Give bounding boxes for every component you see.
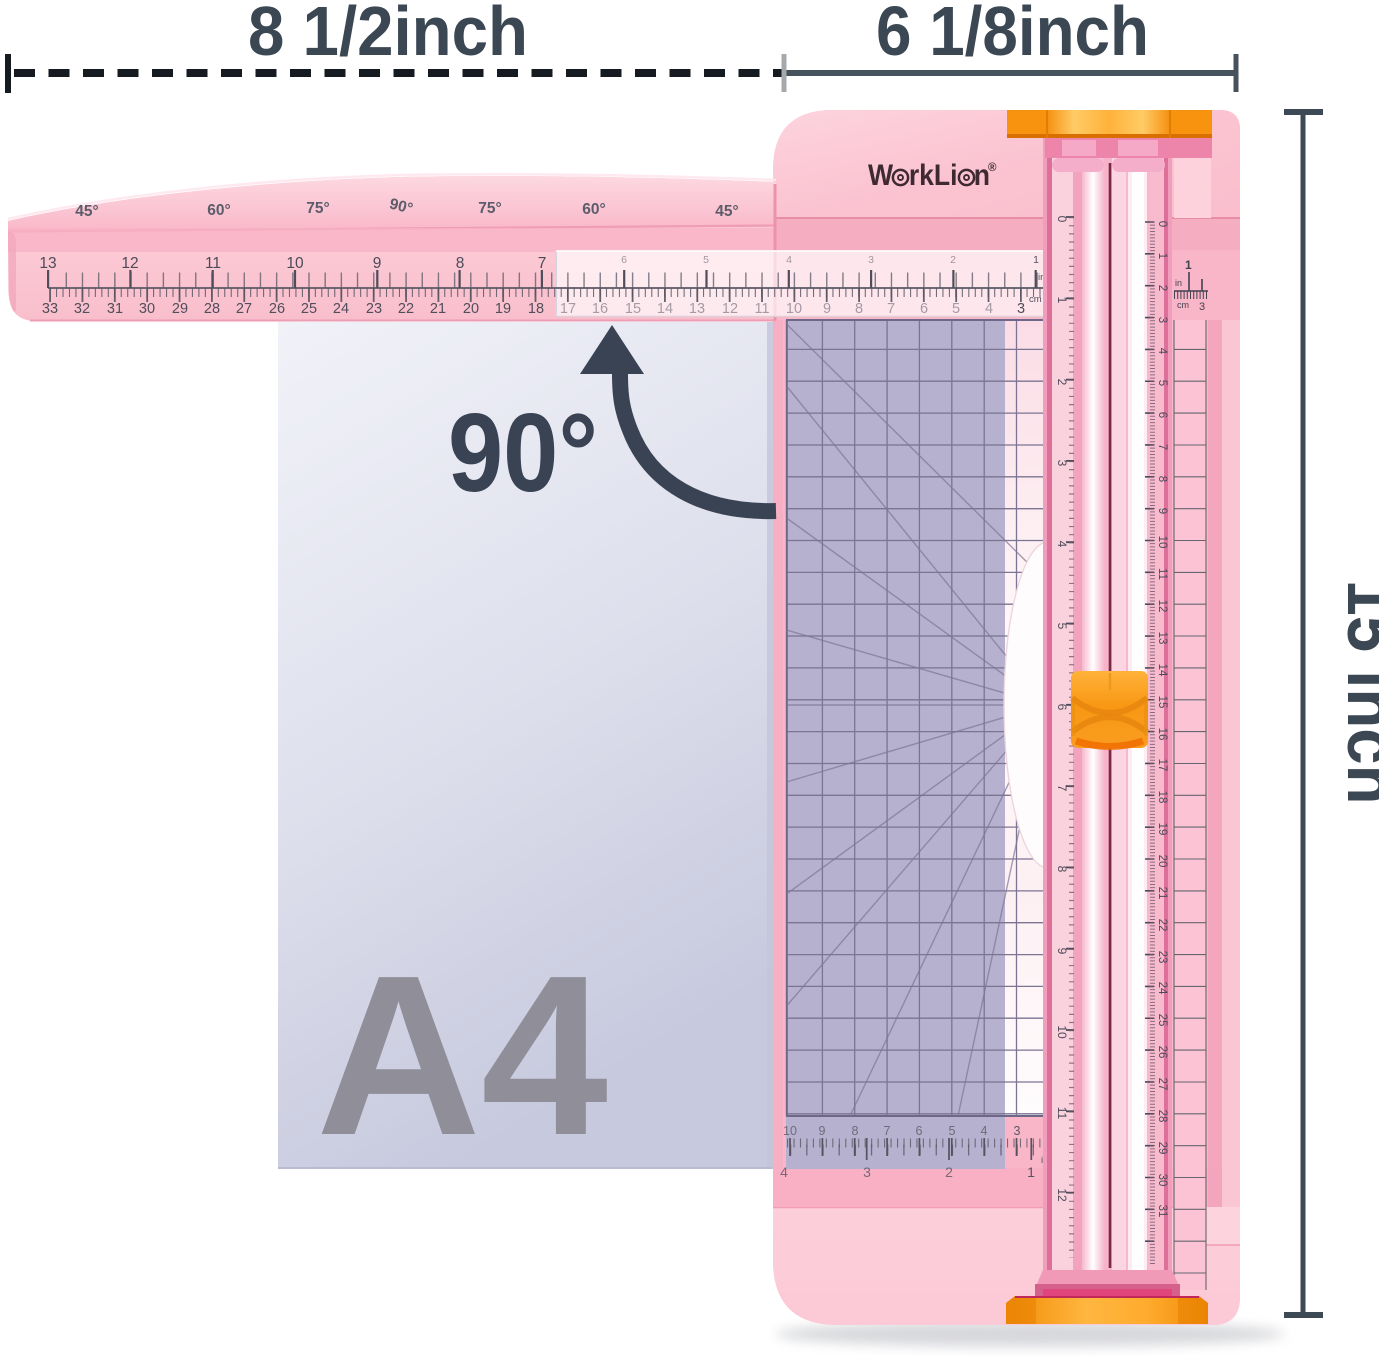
svg-text:60°: 60° [207, 202, 230, 219]
svg-text:3: 3 [1017, 301, 1025, 317]
svg-text:®: ® [988, 162, 997, 174]
svg-text:45°: 45° [75, 203, 98, 220]
svg-text:8: 8 [1156, 476, 1168, 482]
svg-text:21: 21 [1156, 887, 1168, 900]
svg-text:30: 30 [1156, 1174, 1168, 1187]
svg-text:60°: 60° [582, 201, 605, 218]
svg-text:75°: 75° [478, 200, 501, 217]
svg-text:cm: cm [1177, 300, 1189, 310]
svg-text:3: 3 [1199, 301, 1205, 313]
svg-text:5: 5 [952, 301, 960, 317]
svg-text:45°: 45° [715, 203, 738, 220]
svg-text:4: 4 [981, 1124, 988, 1138]
svg-text:75°: 75° [306, 200, 329, 217]
svg-text:31: 31 [107, 301, 123, 317]
svg-text:20: 20 [1156, 855, 1168, 868]
svg-text:24: 24 [333, 301, 349, 317]
svg-text:90°: 90° [448, 391, 598, 515]
svg-text:9: 9 [1156, 508, 1168, 514]
svg-text:8 1/2inch: 8 1/2inch [248, 0, 528, 70]
svg-text:4: 4 [1156, 348, 1168, 355]
svg-text:20: 20 [463, 301, 479, 317]
svg-text:11: 11 [1055, 1107, 1069, 1120]
svg-text:25: 25 [301, 301, 317, 317]
svg-text:15: 15 [625, 301, 641, 317]
svg-text:3: 3 [1014, 1124, 1021, 1138]
svg-text:16: 16 [1156, 728, 1168, 741]
svg-text:1: 1 [1156, 253, 1168, 259]
svg-text:2: 2 [945, 1164, 953, 1180]
svg-text:33: 33 [42, 301, 58, 317]
svg-text:23: 23 [1156, 951, 1168, 964]
svg-text:28: 28 [1156, 1110, 1168, 1123]
svg-text:4: 4 [780, 1164, 788, 1180]
svg-text:30: 30 [139, 301, 155, 317]
svg-text:28: 28 [204, 301, 220, 317]
svg-text:27: 27 [236, 301, 252, 317]
svg-text:9: 9 [823, 301, 831, 317]
svg-text:7: 7 [887, 301, 895, 317]
svg-text:15 inch: 15 inch [1333, 580, 1379, 805]
svg-text:24: 24 [1156, 982, 1168, 995]
svg-text:5: 5 [1156, 380, 1168, 386]
svg-text:9: 9 [819, 1124, 826, 1138]
svg-text:in: in [1175, 278, 1182, 288]
svg-text:6: 6 [1156, 412, 1168, 418]
svg-text:11: 11 [754, 301, 769, 317]
svg-text:22: 22 [398, 301, 414, 317]
svg-text:9: 9 [373, 255, 382, 272]
svg-text:10: 10 [286, 255, 304, 272]
svg-text:14: 14 [657, 301, 673, 317]
svg-text:25: 25 [1156, 1014, 1168, 1027]
svg-text:1: 1 [1033, 254, 1039, 266]
svg-text:cm: cm [1029, 294, 1042, 305]
svg-text:18: 18 [1156, 791, 1168, 804]
svg-text:29: 29 [1156, 1142, 1168, 1155]
svg-text:12: 12 [121, 255, 138, 272]
svg-text:26: 26 [1156, 1046, 1168, 1059]
svg-text:13: 13 [1156, 632, 1168, 645]
svg-text:31: 31 [1156, 1205, 1168, 1218]
svg-text:12: 12 [1055, 1188, 1069, 1202]
svg-text:12: 12 [1156, 600, 1168, 613]
svg-text:22: 22 [1156, 919, 1168, 932]
svg-text:16: 16 [592, 301, 608, 317]
svg-text:2: 2 [950, 254, 956, 266]
svg-text:11: 11 [205, 255, 221, 272]
svg-text:8: 8 [456, 255, 465, 272]
svg-text:10: 10 [1055, 1025, 1069, 1039]
svg-text:18: 18 [528, 301, 544, 317]
svg-text:12: 12 [722, 301, 738, 317]
svg-text:21: 21 [430, 301, 446, 317]
svg-text:17: 17 [1156, 759, 1168, 772]
svg-text:6: 6 [916, 1124, 923, 1138]
svg-text:3: 3 [1156, 317, 1168, 323]
svg-text:7: 7 [1156, 444, 1168, 450]
svg-text:26: 26 [269, 301, 285, 317]
svg-text:6: 6 [621, 254, 627, 266]
svg-text:17: 17 [560, 301, 576, 317]
svg-text:3: 3 [868, 254, 874, 266]
svg-text:14: 14 [1156, 664, 1168, 677]
svg-text:10: 10 [783, 1124, 797, 1138]
svg-text:19: 19 [495, 301, 511, 317]
svg-text:27: 27 [1156, 1078, 1168, 1091]
svg-text:0: 0 [1156, 221, 1168, 227]
svg-text:5: 5 [949, 1124, 956, 1138]
svg-text:10: 10 [1156, 536, 1168, 549]
svg-text:4: 4 [985, 301, 993, 317]
svg-text:8: 8 [855, 301, 863, 317]
svg-text:29: 29 [172, 301, 188, 317]
svg-text:11: 11 [1156, 568, 1168, 580]
svg-text:A4: A4 [316, 929, 608, 1183]
svg-text:3: 3 [863, 1164, 871, 1180]
svg-text:1: 1 [1027, 1164, 1035, 1180]
svg-text:8: 8 [852, 1124, 859, 1138]
svg-text:13: 13 [689, 301, 705, 317]
svg-text:10: 10 [786, 301, 802, 317]
svg-text:5: 5 [703, 254, 709, 266]
svg-text:23: 23 [366, 301, 382, 317]
svg-text:13: 13 [39, 255, 56, 272]
svg-text:2: 2 [1156, 285, 1168, 291]
svg-text:6: 6 [920, 301, 928, 317]
svg-text:6 1/8inch: 6 1/8inch [876, 0, 1149, 70]
svg-text:15: 15 [1156, 696, 1168, 709]
svg-text:19: 19 [1156, 823, 1168, 836]
svg-text:32: 32 [74, 301, 90, 317]
svg-text:7: 7 [538, 255, 547, 272]
svg-text:1: 1 [1185, 258, 1192, 272]
svg-text:4: 4 [786, 254, 792, 266]
svg-text:7: 7 [884, 1124, 891, 1138]
